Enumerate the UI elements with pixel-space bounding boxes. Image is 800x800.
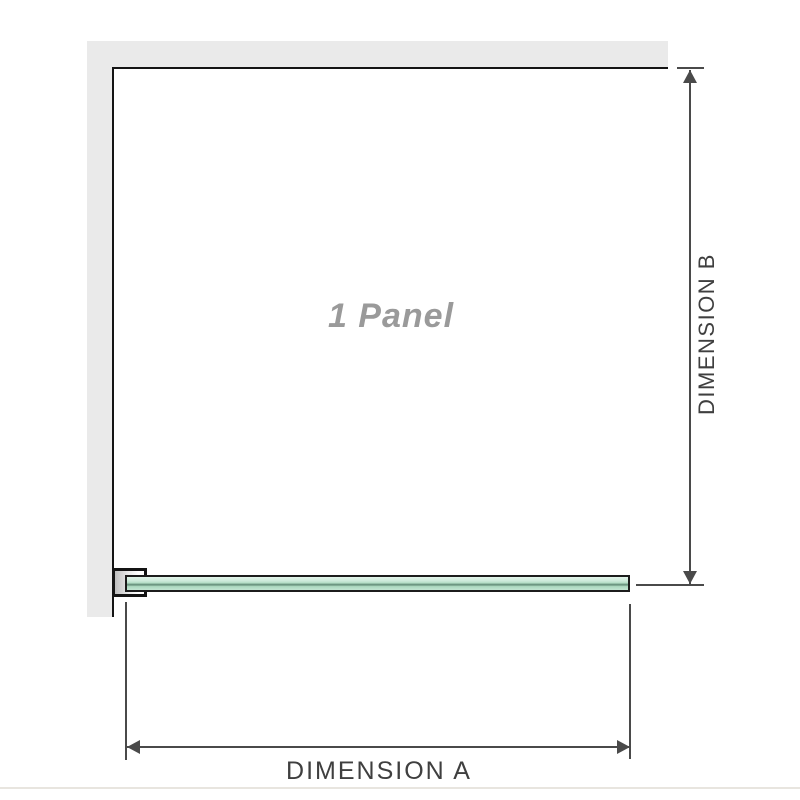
dimension-b-label: DIMENSION B	[695, 224, 719, 444]
dimension-a-extension-left	[125, 602, 127, 760]
dimension-b-line	[689, 70, 691, 584]
dimension-b-arrow-down-icon	[683, 571, 697, 584]
dimension-a-label: DIMENSION A	[128, 757, 630, 786]
panel-outline-left	[112, 67, 114, 617]
panel-count-label: 1 Panel	[113, 297, 669, 336]
panel-outline-top	[112, 67, 668, 69]
bottom-divider	[0, 787, 800, 789]
glass-panel-bar	[125, 575, 630, 592]
wall-left	[87, 41, 112, 617]
dimension-a-arrow-right-icon	[617, 740, 630, 754]
dimension-b-arrow-up-icon	[683, 70, 697, 83]
dimension-a-line	[127, 746, 630, 748]
panel-dimension-diagram: 1 Panel DIMENSION B DIMENSION A	[0, 0, 800, 800]
dimension-b-extension-bottom	[636, 584, 704, 586]
dimension-b-extension-top	[677, 67, 704, 69]
dimension-a-extension-right	[629, 604, 631, 759]
dimension-a-arrow-left-icon	[127, 740, 140, 754]
wall-top	[87, 41, 668, 67]
